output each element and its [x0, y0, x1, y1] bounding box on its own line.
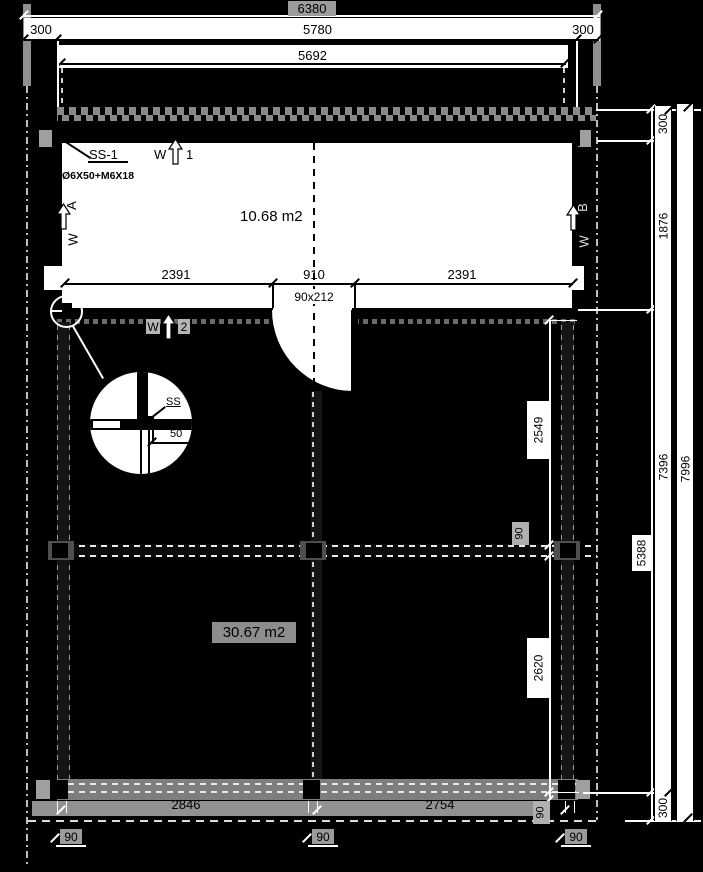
dim-overall-width: 6380 — [298, 2, 327, 15]
chain-seg-300-bottom: 300 — [657, 798, 669, 818]
room-dim-line — [65, 283, 573, 285]
floor-plan-drawing: 6380 300 5780 300 5692 SS-1 Ø6X50+M6 — [0, 0, 703, 872]
centerline-terrace — [312, 392, 314, 780]
dim-inner-span: 5692 — [298, 49, 327, 62]
wall-marker-bottom-id: 2 — [181, 321, 188, 333]
dim-outer-total: 7996 — [679, 456, 691, 483]
wall-marker-top-arrow-icon — [168, 138, 183, 165]
door-size-label: 90x212 — [294, 291, 333, 303]
dim-overall-box: 6380 — [288, 1, 336, 16]
terrace-chain-upper: 2549 — [532, 417, 544, 444]
post-width-left: 90 — [64, 831, 77, 843]
post-width-right: 90 — [569, 831, 582, 843]
detail-ref-label: SS-1 — [89, 147, 118, 162]
bottom-dim-right-bay: 2754 — [426, 798, 455, 811]
terrace-area-label: 30.67 m2 — [223, 625, 286, 640]
roof-edge-right-line — [596, 86, 598, 820]
detail-circle: SS 50 — [88, 370, 194, 476]
wall-marker-top-letter: W — [154, 147, 166, 162]
wall-marker-right-letter: W — [578, 235, 591, 247]
dim-left-overhang: 300 — [30, 23, 52, 36]
roof-edge-bottom-line — [28, 820, 597, 822]
wall-marker-right-arrow-icon — [566, 204, 581, 231]
top-wall — [57, 121, 578, 143]
door-leaf — [351, 310, 358, 399]
roof-fascia-hatch — [57, 107, 596, 115]
terrace-area-box: 30.67 m2 — [212, 622, 296, 643]
dim-inner-total: 7396 — [657, 454, 669, 481]
chain-seg-300-top: 300 — [657, 114, 669, 134]
detail-label: SS — [166, 396, 181, 408]
chain-seg-5388: 5388 — [636, 540, 648, 567]
roof-edge-left-line — [26, 86, 28, 866]
room-area-label: 10.68 m2 — [240, 208, 303, 225]
wall-marker-top-id: 1 — [186, 147, 193, 162]
fastener-spec-label: Ø6X50+M6X18 — [62, 170, 134, 182]
wall-marker-left-letter: W — [67, 233, 80, 245]
chain-seg-1876: 1876 — [657, 212, 669, 239]
room-dim-right: 2391 — [448, 268, 477, 281]
terrace-chain-lower: 2620 — [532, 655, 544, 682]
dim-wall-span: 5780 — [303, 23, 332, 36]
wall-marker-left-arrow-icon — [56, 203, 71, 230]
terrace-chain-joist: 90 — [515, 527, 526, 539]
bottom-dim-left-bay: 2846 — [172, 798, 201, 811]
room-dim-opening: 910 — [303, 268, 325, 281]
room-dim-left: 2391 — [162, 268, 191, 281]
detail-leader-line — [73, 326, 104, 379]
terrace-chain-line — [549, 320, 551, 800]
dim-right-overhang: 300 — [572, 23, 594, 36]
bottom-dim-band — [32, 801, 548, 816]
wall-marker-bottom-letter: W — [147, 321, 158, 333]
wall-marker-bottom-arrow-icon — [161, 313, 176, 340]
post-width-center: 90 — [316, 831, 329, 843]
detail-offset-dim: 50 — [170, 428, 182, 440]
terrace-chain-beam: 90 — [536, 806, 547, 818]
